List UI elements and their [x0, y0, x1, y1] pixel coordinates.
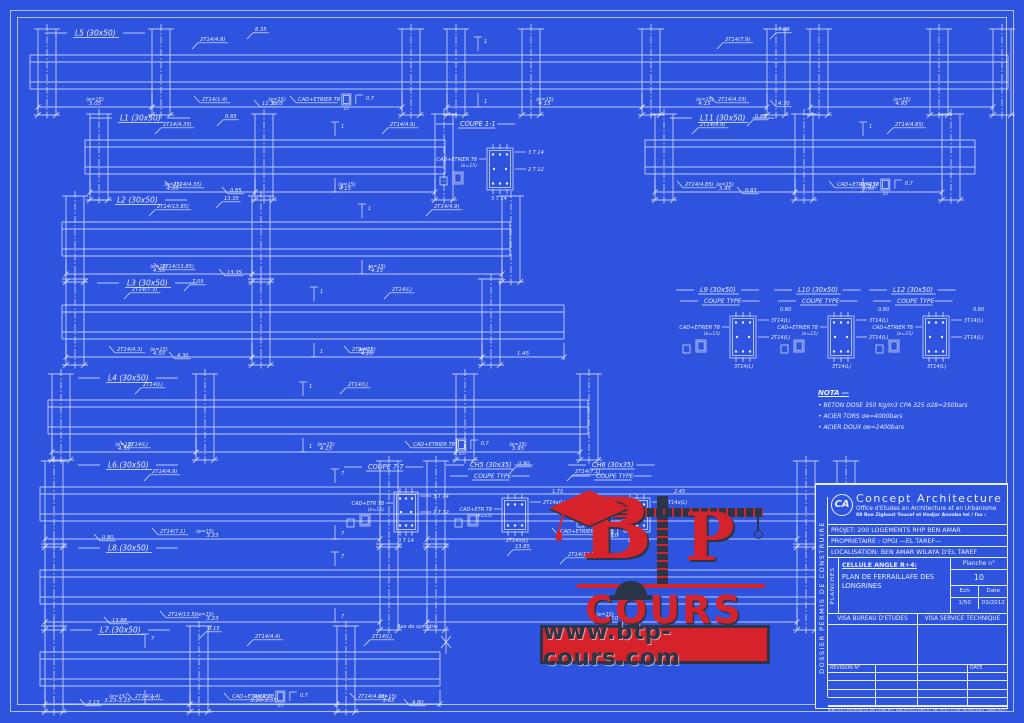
svg-text:COUPE TYPE: COUPE TYPE — [897, 298, 935, 305]
visa-boxes — [828, 625, 1007, 665]
rebar-annotation: 7.05 — [192, 279, 204, 285]
beam-label: L6.(30x50) — [108, 461, 149, 470]
nota-item: • BETON DOSE 350 Kg/m3 CPA 325 σ28=250ba… — [818, 400, 1008, 411]
svg-text:0.7: 0.7 — [300, 693, 309, 699]
svg-text:25: 25 — [459, 451, 465, 456]
rebar-annotation: 4.80 — [412, 700, 424, 706]
svg-text:1: 1 — [869, 184, 872, 190]
axis-of-symmetry-label: Axe de symetrie — [396, 624, 438, 630]
svg-text:2T14(L): 2T14(L) — [869, 335, 888, 341]
svg-text:25: 25 — [344, 106, 350, 111]
svg-text:(e=15): (e=15) — [802, 331, 818, 337]
spacing-note: (e=15) — [509, 442, 527, 448]
svg-text:(e=15): (e=15) — [461, 163, 477, 169]
spacing-note: (e=15) — [716, 182, 734, 188]
watermark-url-banner: www.btp-cours.com — [540, 625, 770, 664]
ech-value: 1/50 — [951, 598, 980, 609]
svg-text:(e=15): (e=15) — [368, 507, 384, 513]
svg-text:COUPE TYPE: COUPE TYPE — [474, 473, 512, 480]
rebar-annotation: 2T14(4.3) — [117, 347, 142, 353]
svg-text:1: 1 — [484, 39, 487, 45]
rebar-annotation: 4.70 — [778, 101, 790, 107]
beam-L3: L3 (30x50)4.554.151.45(e=15)(e=15)2T14(7… — [62, 274, 567, 369]
date-value: 03/2012 — [979, 598, 1007, 609]
svg-text:25: 25 — [278, 703, 284, 708]
rebar-annotation: 7.80 — [778, 27, 790, 33]
rebar-annotation: 2.15 — [88, 700, 100, 706]
spacing-note: (e=15) — [150, 347, 168, 353]
revision-date-label: DATE — [968, 665, 1007, 673]
svg-text:7: 7 — [151, 636, 155, 642]
svg-text:CH5 (30x35): CH5 (30x35) — [470, 461, 512, 469]
spacing-note: (e=15) — [196, 529, 214, 535]
svg-text:1: 1 — [341, 124, 344, 130]
rebar-annotation: 0.90 — [518, 461, 530, 467]
revision-label: REVISION N° — [828, 665, 876, 673]
svg-text:CAD+ETRIER T8: CAD+ETRIER T8 — [777, 325, 818, 331]
rebar-annotation: 2T14(4.85) — [895, 122, 924, 128]
rebar-annotation: 2T14(13.85) — [162, 264, 194, 270]
crane-tower — [657, 514, 668, 586]
section-coupe-1-1: COUPE 1-13 T 142 T 123 T 14CAD+ETRIER T8… — [436, 120, 544, 202]
rebar-annotation: 0.85 — [225, 114, 237, 120]
crane-top — [657, 496, 668, 509]
svg-text:L9 (30x50): L9 (30x50) — [700, 286, 736, 294]
rebar-annotation: CAD+ETRIER T8 — [298, 97, 341, 103]
svg-text:(e=15): (e=15) — [897, 331, 913, 337]
beam-label: L5 (30x50) — [75, 29, 116, 38]
watermark-url: www.btp-cours.com — [543, 619, 767, 671]
beam-label: L1 (30x50) — [120, 114, 161, 123]
firm-header: CA Concept Architecture Office d'Etudes … — [828, 485, 1007, 525]
svg-text:1 T 12: 1 T 12 — [433, 510, 449, 516]
beam-label: L7.(30x50) — [100, 626, 141, 635]
svg-text:CAD+ETR T8: CAD+ETR T8 — [460, 507, 492, 513]
svg-text:L12 (30x50): L12 (30x50) — [893, 286, 933, 294]
svg-text:0.7: 0.7 — [481, 441, 490, 447]
svg-text:1: 1 — [309, 444, 312, 450]
svg-text:3 T 14: 3 T 14 — [528, 150, 544, 156]
svg-text:1: 1 — [368, 266, 371, 272]
svg-text:3T14(L): 3T14(L) — [927, 364, 946, 370]
svg-text:CAD+ETRIER T8: CAD+ETRIER T8 — [872, 325, 913, 331]
rebar-annotation: 2T14(L) — [348, 382, 368, 388]
ech-label: Ech — [951, 586, 980, 597]
svg-text:(e=15): (e=15) — [704, 331, 720, 337]
rebar-annotation: 0.85 — [230, 188, 242, 194]
svg-text:1: 1 — [869, 124, 872, 130]
beam-label: L8.(30x50) — [108, 544, 149, 553]
localisation-row: LOCALISATION: BEN AMAR WILAYA D'EL TAREF — [828, 547, 1007, 558]
section-l9: L9 (30x50)COUPE TYPE3T14(L)0.802T14(L)3T… — [676, 286, 791, 370]
rebar-annotation: 0.80 — [102, 535, 114, 541]
spacing-note: (e=15) — [86, 97, 104, 103]
rebar-annotation: 2T14(13.5) — [168, 612, 197, 618]
rebar-annotation: 2T14(L) — [143, 382, 163, 388]
rebar-annotation: 2T14(4.55) — [718, 97, 747, 103]
rebar-annotation: 13.35 — [224, 196, 240, 202]
date-label: Date — [979, 586, 1007, 597]
rebar-annotation: 2T14(4.9) — [390, 122, 415, 128]
svg-text:CAD+ETR T8: CAD+ETR T8 — [352, 501, 384, 507]
spacing-note: (e=15) — [893, 97, 911, 103]
svg-text:1: 1 — [368, 206, 371, 212]
projet-row: PROJET: 200 LOGEMENTS RHP BEN AMAR — [828, 525, 1007, 536]
svg-text:3 T 14: 3 T 14 — [398, 538, 414, 544]
section-coupe-7-7: COUPE 7-73 T 141 T 123 T 14CAD+ETR T8(e=… — [344, 463, 449, 544]
spacing-note: (e=15) — [696, 97, 714, 103]
rebar-annotation: 13.88 — [112, 618, 128, 624]
rebar-annotation: 2T14(4.8) — [200, 37, 225, 43]
svg-text:1: 1 — [320, 349, 323, 355]
dim-text: 1.45 — [517, 351, 530, 357]
svg-text:7: 7 — [341, 554, 345, 560]
svg-text:0.80: 0.80 — [780, 307, 791, 313]
svg-text:0.80: 0.80 — [878, 307, 889, 313]
svg-text:1: 1 — [320, 289, 323, 295]
spacing-note: (e=15) — [317, 442, 335, 448]
svg-text:0.80: 0.80 — [973, 307, 984, 313]
svg-text:7: 7 — [341, 471, 345, 477]
concept-architecture-logo: CA — [831, 494, 853, 516]
spacing-note: (e=15) — [109, 694, 127, 700]
nota-item: • ACIER DOUX σe=2400bars — [818, 422, 1008, 433]
rebar-annotation: 2T14(4.9) — [434, 204, 459, 210]
svg-text:25: 25 — [883, 191, 889, 196]
svg-text:COUPE 1-1: COUPE 1-1 — [460, 120, 496, 128]
rebar-annotation: 2T14(4.9) — [152, 469, 177, 475]
svg-text:0.7: 0.7 — [905, 181, 914, 187]
svg-text:3T14(L): 3T14(L) — [869, 318, 888, 324]
firm-address: 88 Rue Zighout Youcef et Hadjar Annaba t… — [856, 513, 1002, 518]
svg-text:7: 7 — [341, 614, 345, 620]
planche-label: Planche n° — [951, 558, 1007, 570]
svg-text:3 T 14: 3 T 14 — [491, 196, 507, 202]
rebar-annotation: 2T14(L) — [128, 442, 148, 448]
copyright-note: CE DOCUMENT EST PROPRIETE DE CONCEPT ARC… — [828, 707, 1007, 712]
rebar-annotation: 0.85 — [755, 114, 767, 120]
beam-L5: L5 (30x50)3.053.054.154.154.95(e=15)(e=1… — [30, 24, 1015, 119]
spacing-note: (e=15) — [196, 612, 214, 618]
firm-subtitle: Office d'Etudes en Architecture et en Ur… — [856, 506, 1002, 512]
svg-text:3 T 14: 3 T 14 — [433, 494, 449, 500]
rebar-annotation: 2T14(4.35) — [163, 122, 192, 128]
svg-text:CAD+ETRIER T8: CAD+ETRIER T8 — [436, 157, 477, 163]
svg-text:2T14(L): 2T14(L) — [771, 335, 790, 341]
blueprint-sheet: L5 (30x50)3.053.054.154.154.95(e=15)(e=1… — [0, 0, 1024, 723]
rebar-annotation: 2T14(4.85) — [685, 182, 714, 188]
svg-text:0.7: 0.7 — [366, 96, 375, 102]
svg-text:2T14x(L): 2T14x(L) — [506, 538, 528, 544]
rebar-annotation: CAD+ETRIER T8 — [232, 694, 275, 700]
beam-L2: L2 (30x50)4.554.15(e=15)(e=15)2T14(13.85… — [62, 191, 524, 286]
svg-text:2T14(L): 2T14(L) — [964, 335, 983, 341]
rebar-annotation: 2T14(2.4) — [135, 694, 160, 700]
rebar-annotation: CAD+ETRIER T8 — [413, 442, 456, 448]
spacing-note: (e=15) — [536, 97, 554, 103]
visa-service-label: VISA SERVICE TECHNIQUE — [918, 614, 1007, 624]
firm-name: Concept Architecture — [856, 492, 1002, 505]
rebar-annotation: 2T14(4.9) — [700, 122, 725, 128]
svg-text:CAD+ETRIER T8: CAD+ETRIER T8 — [679, 325, 720, 331]
rebar-annotation: 2T14(L) — [392, 287, 412, 293]
visa-bureau-label: VISA BUREAU D'ETUDES — [828, 614, 918, 624]
rebar-annotation: 2T14(7.1) — [160, 529, 185, 535]
svg-text:3T14(L): 3T14(L) — [734, 364, 753, 370]
rebar-annotation: 2T14(7.9) — [725, 37, 750, 43]
svg-text:COUPE TYPE: COUPE TYPE — [704, 298, 742, 305]
svg-text:COUPE TYPE: COUPE TYPE — [802, 298, 840, 305]
svg-text:1: 1 — [341, 184, 344, 190]
crane-hook-icon — [754, 530, 763, 539]
svg-text:CH6 (30x35): CH6 (30x35) — [592, 461, 634, 469]
rebar-annotation: 2T14(L) — [372, 634, 392, 640]
rebar-annotation: 2T14(1.4) — [202, 97, 227, 103]
svg-text:1: 1 — [484, 99, 487, 105]
planche-number: 10 — [951, 570, 1007, 586]
revision-table: REVISION N° DATE — [828, 665, 1007, 707]
rebar-annotation: 11.35 — [262, 101, 278, 107]
section-l12: L12 (30x50)COUPE TYPE3T14(L)0.802T14(L)3… — [869, 286, 984, 370]
rebar-annotation: 13.35 — [227, 270, 243, 276]
watermark-letter-p: P — [685, 508, 735, 566]
cellule-title: CELLULE ANGLE R+4: — [842, 562, 947, 569]
rebar-annotation: 2T14(13.85) — [157, 204, 189, 210]
hard-hat-brim — [609, 595, 653, 600]
plan-title: PLAN DE FERRAILLAFE DES LONGRINES — [842, 573, 947, 590]
beam-label: L2 (30x50) — [117, 196, 158, 205]
graduation-cap-base — [577, 502, 603, 517]
rebar-annotation: CAD+ETRIER T8 — [837, 182, 880, 188]
btp-cours-watermark: B P COURS www.btp-cours.com — [535, 480, 770, 662]
beam-L7: L7.(30x50)3.23-3.253.20-3.353.65(e=15)(e… — [40, 621, 451, 716]
rebar-annotation: 2T14(4.4) — [255, 634, 280, 640]
rebar-annotation: 2T14(L) — [352, 347, 372, 353]
beam-L4: L4 (30x50)4.554.153.95(e=15)(e=15)(e=15)… — [48, 369, 602, 464]
graduation-cap-tassel-end — [556, 532, 562, 541]
beam-L1: L1 (30x50)4.354.15(e=15)(e=15)2T14(4.35)… — [85, 109, 457, 204]
crane-hook-line — [757, 517, 759, 531]
proprietaire-row: PROPRIETAIRE : OPGI —EL TAREF— — [828, 536, 1007, 547]
rebar-annotation: 8.35 — [255, 27, 267, 33]
svg-text:3T14(L): 3T14(L) — [964, 318, 983, 324]
rebar-annotation: 2T14(7.3) — [132, 287, 157, 293]
svg-text:1: 1 — [309, 384, 312, 390]
beam-L11: L11 (30x50)3.953.95(e=15)(e=15)2T14(4.9)… — [645, 109, 975, 204]
nota-item: • ACIER TORS σe=4000bars — [818, 411, 1008, 422]
nota: NOTA — • BETON DOSE 350 Kg/m3 CPA 325 σ2… — [818, 389, 1008, 433]
title-block: REPUBLIQUE ALGERIENNE DEMOCRATIQUE ET PO… — [815, 483, 1008, 709]
svg-text:3T14(L): 3T14(L) — [771, 318, 790, 324]
svg-text:COUPE 7-7: COUPE 7-7 — [368, 463, 404, 471]
rebar-annotation: 0.83 — [745, 188, 757, 194]
svg-text:L10 (30x50): L10 (30x50) — [798, 286, 838, 294]
dossier-label: DOSSIER PERMIS DE CONSTRUIRE — [818, 521, 826, 674]
svg-text:2 T 12: 2 T 12 — [528, 167, 544, 173]
svg-text:3T14(L): 3T14(L) — [832, 364, 851, 370]
rebar-annotation: 2T14(4.35) — [173, 182, 202, 188]
nota-title: NOTA — — [818, 389, 1008, 397]
dossier-strip: DOSSIER PERMIS DE CONSTRUIRE — [816, 497, 828, 697]
svg-text:7: 7 — [341, 531, 345, 537]
planches-strip: PLANCHES — [828, 558, 839, 613]
rebar-annotation: 4.30 — [177, 353, 189, 359]
rebar-annotation: 8.15 — [208, 626, 220, 632]
rebar-annotation: 13.85 — [515, 544, 531, 550]
rebar-annotation: 2T14(4.85) — [358, 694, 387, 700]
